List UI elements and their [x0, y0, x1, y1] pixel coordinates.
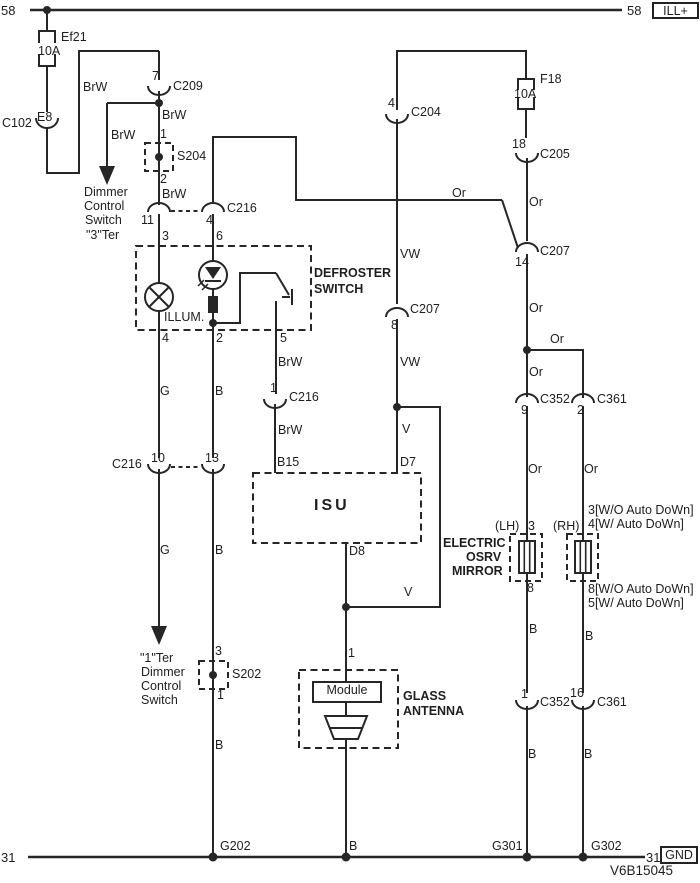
wire-g-lower: G — [160, 544, 170, 557]
wire-b-lh-upper: B — [529, 623, 537, 636]
fuse-ef21 — [39, 10, 55, 112]
wire-or-branch: Or — [550, 333, 564, 346]
connector-c216-top-pin-4: 4 — [206, 214, 213, 227]
connector-c361-bottom-name: C361 — [597, 696, 627, 709]
mirror-name-line-1: ELECTRIC — [443, 537, 506, 550]
connector-c205-name: C205 — [540, 148, 570, 161]
wire-or-below-c207: Or — [529, 302, 543, 315]
defroster-pin-6: 6 — [216, 230, 223, 243]
connector-c352-bottom-name: C352 — [540, 696, 570, 709]
wiring-diagram-page: 58 58 ILL+ 31 31 GND V6B15045 Ef2110AC10… — [0, 0, 700, 883]
connector-c207-mid-name: C207 — [410, 303, 440, 316]
mirror-rh-note-line-4: 5[W/ Auto DoWn] — [588, 597, 684, 610]
wire-brw-above-c216: BrW — [162, 188, 186, 201]
glass-antenna-box — [299, 670, 398, 857]
antenna-name-line-1: GLASS — [403, 690, 446, 703]
connector-c216-mid-name: C216 — [112, 458, 142, 471]
connector-c216-top-name: C216 — [227, 202, 257, 215]
isu-pin-d7: D7 — [400, 456, 416, 469]
dimmer-note-line-2: Control — [84, 200, 124, 213]
connector-c361-top-pin-2: 2 — [577, 404, 584, 417]
wire-or-above-c352: Or — [529, 366, 543, 379]
ground-g302-name: G302 — [591, 840, 622, 853]
antenna-module-label: Module — [313, 684, 381, 697]
splice-s204-name: S204 — [177, 150, 206, 163]
gnd-tag: GND — [660, 846, 698, 864]
defroster-illum-label: ILLUM. — [164, 311, 204, 324]
connector-c216-mid-right-pin-1: 1 — [270, 382, 277, 395]
connector-c209-pin-7: 7 — [152, 70, 159, 83]
fuse-ef21-rating: 10A — [38, 45, 60, 58]
rail-58-left-label: 58 — [1, 3, 15, 18]
dimmer-note-line-4: "3"Ter — [86, 229, 119, 242]
wire-b-antenna-ground: B — [349, 840, 357, 853]
dimmer-note-line-1: Dimmer — [84, 186, 128, 199]
connector-c205-pin-18: 18 — [512, 138, 526, 151]
antenna-pin-1: 1 — [348, 647, 355, 660]
mirror-name-line-3: MIRROR — [452, 565, 503, 578]
connector-c361-top-name: C361 — [597, 393, 627, 406]
isu-box — [253, 407, 440, 682]
diagram-code: V6B15045 — [610, 863, 673, 878]
wire-vw-lower: VW — [400, 356, 420, 369]
wire-b-lh-lower: B — [528, 748, 536, 761]
mirror-rh-note-line-1: 3[W/O Auto DoWn] — [588, 504, 694, 517]
defroster-pin-4: 4 — [162, 332, 169, 345]
splice-s202-pin-1: 1 — [217, 689, 224, 702]
switch-blade-icon — [276, 273, 289, 295]
connector-c352-top-pin-9: 9 — [521, 404, 528, 417]
connector-c361-bottom-pin-16: 16 — [570, 687, 584, 700]
rail-31-left-label: 31 — [1, 850, 15, 865]
fuse-f18-rating: 10A — [514, 88, 536, 101]
splice-s202-name: S202 — [232, 668, 261, 681]
connector-c352-top-name: C352 — [540, 393, 570, 406]
resistor-icon — [208, 296, 218, 313]
splice-s202 — [199, 469, 228, 857]
wire-v-antenna: V — [404, 586, 412, 599]
defroster-name-line-2: SWITCH — [314, 283, 363, 296]
connector-c216-mid-pin-10: 10 — [151, 452, 165, 465]
wire-or-rh: Or — [584, 463, 598, 476]
antenna-name-line-2: ANTENNA — [403, 705, 464, 718]
defroster-pin-2: 2 — [216, 332, 223, 345]
isu-pin-b15: B15 — [277, 456, 299, 469]
switch-feed-wire — [213, 273, 276, 323]
ground-g301-dot — [523, 853, 532, 862]
ter-note-line-1: "1"Ter — [140, 652, 173, 665]
wire-b-rh-lower: B — [584, 748, 592, 761]
mirror-lh-tag: (LH) — [495, 520, 519, 533]
ground-g302-dot — [579, 853, 588, 862]
ter-note-line-4: Switch — [141, 694, 178, 707]
wire-brw-feed: BrW — [83, 81, 107, 94]
connector-c216-top-pin-11: 11 — [141, 214, 154, 227]
connector-c204-pin-4: 4 — [388, 97, 395, 110]
wire-b-rh-upper: B — [585, 630, 593, 643]
or-wire-run — [213, 137, 518, 248]
ter-note-line-2: Dimmer — [141, 666, 185, 679]
mirror-rh-note-line-3: 8[W/O Auto DoWn] — [588, 583, 694, 596]
wire-brw-below-c209: BrW — [162, 109, 186, 122]
wire-or-above-c207: Or — [529, 196, 543, 209]
wiring-diagram-graphics — [0, 0, 700, 883]
wire-brw-pin5: BrW — [278, 356, 302, 369]
connector-c102-name: C102 — [2, 117, 32, 130]
connector-c204-name: C204 — [411, 106, 441, 119]
mirror-rh-tag: (RH) — [553, 520, 579, 533]
connector-c216-mid-pin-13: 13 — [205, 452, 219, 465]
mirror-name-line-2: OSRV — [466, 551, 501, 564]
splice-s202-pin-3: 3 — [215, 645, 222, 658]
fuse-ef21-name: Ef21 — [61, 31, 87, 44]
fuse-f18-name: F18 — [540, 73, 562, 86]
connector-c102 — [36, 51, 159, 173]
dimmer-note-line-3: Switch — [85, 214, 122, 227]
rail-58-right-label: 58 — [627, 3, 641, 18]
wire-or-lh: Or — [528, 463, 542, 476]
isu-name: ISU — [314, 498, 350, 515]
connector-c352-bottom — [516, 700, 538, 857]
wire-brw-to-isu: BrW — [278, 424, 302, 437]
mirror-lh-pin-3: 3 — [528, 520, 535, 533]
connector-c204 — [386, 51, 526, 304]
isu-pin-d8: D8 — [349, 545, 365, 558]
connector-c207-right-pin-14: 14 — [515, 256, 529, 269]
connector-c216-mid-right-name: C216 — [289, 391, 319, 404]
wire-brw-dimmer-branch: BrW — [111, 129, 135, 142]
wire-vw-upper: VW — [400, 248, 420, 261]
connector-c207-mid — [386, 308, 408, 473]
wire-b-upper: B — [215, 385, 223, 398]
splice-s204-pin-2: 2 — [160, 173, 167, 186]
wire-g-upper: G — [160, 385, 170, 398]
ground-antenna-dot — [342, 853, 351, 862]
ter-note-line-3: Control — [141, 680, 181, 693]
defroster-name-line-1: DEFROSTER — [314, 267, 391, 280]
ground-g202-dot — [209, 853, 218, 862]
connector-c209-name: C209 — [173, 80, 203, 93]
connector-c102-pin-e8: E8 — [37, 111, 52, 124]
ground-g301-name: G301 — [492, 840, 523, 853]
wire-b-lower: B — [215, 739, 223, 752]
defroster-pin-5: 5 — [280, 332, 287, 345]
mirror-rh — [567, 534, 598, 693]
connector-c361-bottom — [572, 700, 594, 857]
defroster-pin-3: 3 — [162, 230, 169, 243]
connector-c352-bottom-pin-1: 1 — [521, 688, 528, 701]
mirror-lh — [510, 534, 542, 693]
connector-c207-mid-pin-8: 8 — [391, 319, 398, 332]
ill-plus-tag: ILL+ — [652, 2, 699, 19]
ground-g202-name: G202 — [220, 840, 251, 853]
wire-or-top: Or — [452, 187, 466, 200]
mirror-rh-note-line-2: 4[W/ Auto DoWn] — [588, 518, 684, 531]
wire-b-mid: B — [215, 544, 223, 557]
wire-v-to-isu: V — [402, 423, 410, 436]
splice-s204-pin-1: 1 — [160, 128, 167, 141]
connector-c207-right-name: C207 — [540, 245, 570, 258]
mirror-lh-pin-8: 8 — [527, 582, 534, 595]
